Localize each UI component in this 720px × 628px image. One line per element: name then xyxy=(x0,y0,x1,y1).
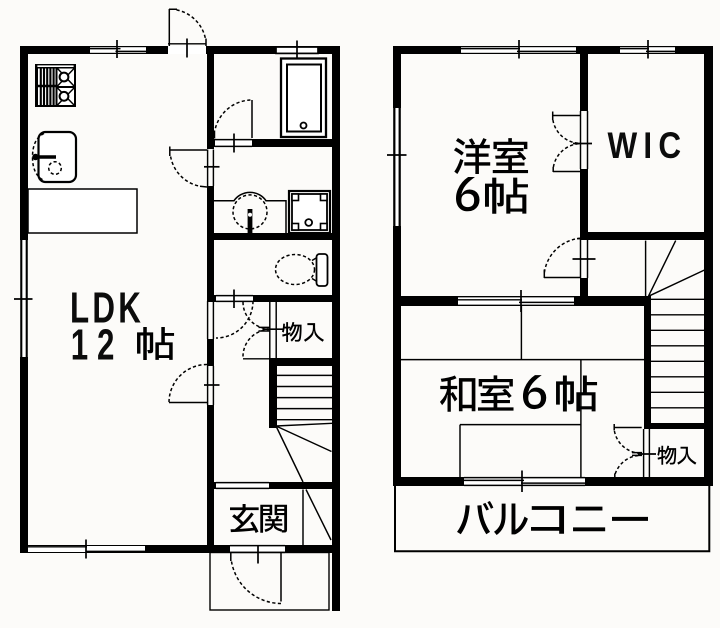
svg-text:WIC: WIC xyxy=(608,126,688,167)
svg-text:12: 12 xyxy=(71,321,124,369)
